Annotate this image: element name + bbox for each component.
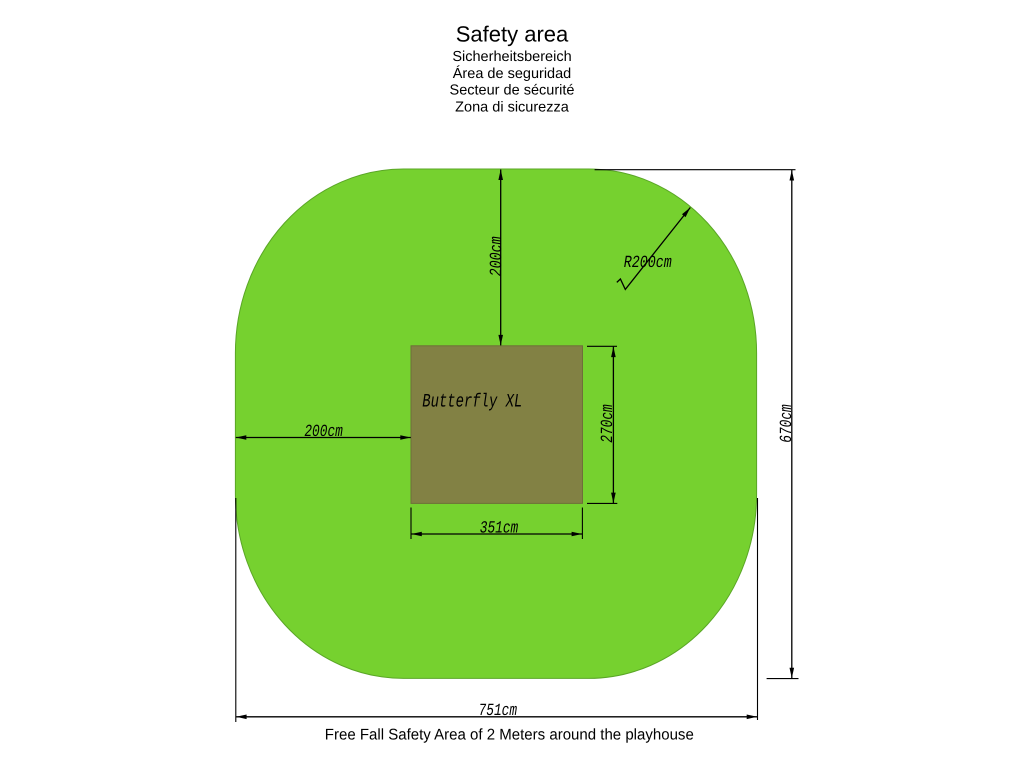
svg-text:Butterfly XL: Butterfly XL [422,390,522,412]
svg-text:Free Fall Safety Area of 2 Met: Free Fall Safety Area of 2 Meters around… [325,727,694,744]
svg-text:Sicherheitsbereich: Sicherheitsbereich [452,49,571,65]
svg-text:Área de seguridad: Área de seguridad [453,65,572,82]
svg-text:Safety area: Safety area [456,22,569,47]
svg-text:Secteur de sécurité: Secteur de sécurité [450,83,575,99]
svg-text:270cm: 270cm [599,404,618,443]
svg-text:R200cm: R200cm [624,254,672,273]
svg-text:351cm: 351cm [480,519,519,538]
svg-text:Zona di sicurezza: Zona di sicurezza [455,99,570,115]
svg-text:751cm: 751cm [479,702,518,721]
svg-text:200cm: 200cm [304,423,343,442]
svg-text:200cm: 200cm [488,236,507,276]
svg-text:670cm: 670cm [778,404,797,443]
